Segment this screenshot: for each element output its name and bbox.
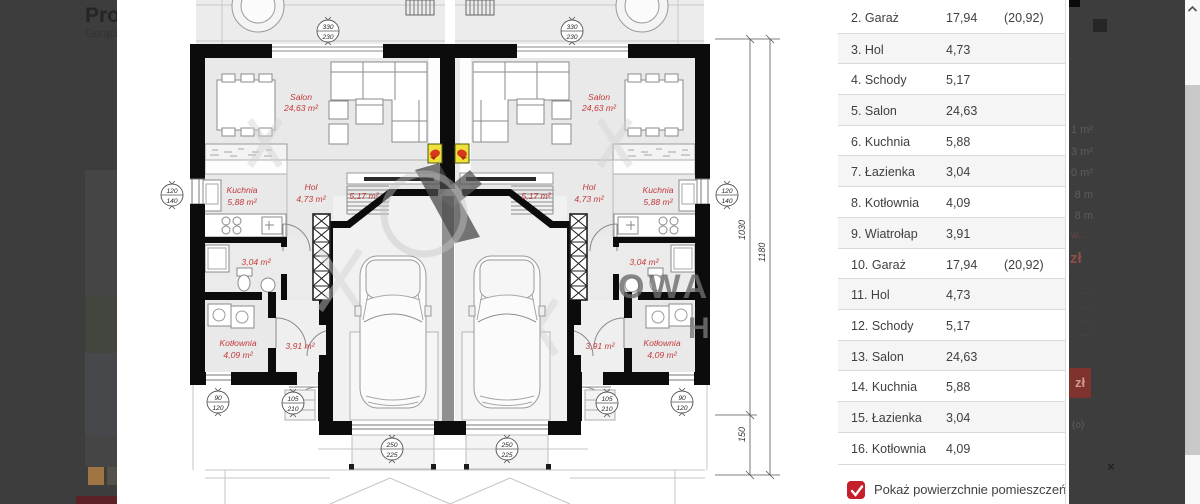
svg-text:3,04 m²: 3,04 m²	[241, 257, 271, 267]
svg-text:120: 120	[721, 188, 732, 195]
svg-text:105: 105	[601, 396, 612, 403]
svg-text:Hol: Hol	[583, 182, 597, 192]
svg-text:1180: 1180	[757, 243, 767, 262]
svg-text:150: 150	[737, 427, 747, 442]
svg-text:Hol: Hol	[305, 182, 319, 192]
svg-text:24,63 m²: 24,63 m²	[581, 103, 617, 113]
svg-text:120: 120	[166, 188, 177, 195]
svg-text:3,91 m²: 3,91 m²	[585, 341, 615, 351]
svg-text:Kuchnia: Kuchnia	[226, 185, 257, 195]
svg-text:330: 330	[566, 24, 577, 31]
svg-text:210: 210	[286, 406, 298, 413]
svg-text:90: 90	[678, 395, 686, 402]
svg-text:Salon: Salon	[588, 92, 610, 102]
svg-text:H: H	[688, 312, 710, 345]
svg-text:225: 225	[385, 452, 397, 459]
svg-text:250: 250	[385, 442, 397, 449]
svg-text:250: 250	[500, 442, 512, 449]
svg-text:4,09 m²: 4,09 m²	[647, 350, 677, 360]
svg-text:120: 120	[212, 405, 223, 412]
svg-text:90: 90	[214, 395, 222, 402]
svg-text:230: 230	[565, 34, 577, 41]
svg-text:Kotłownia: Kotłownia	[643, 338, 680, 348]
svg-text:120: 120	[676, 405, 687, 412]
svg-text:3,04 m²: 3,04 m²	[629, 257, 659, 267]
svg-text:230: 230	[321, 34, 333, 41]
svg-text:Kuchnia: Kuchnia	[642, 185, 673, 195]
svg-text:24,63 m²: 24,63 m²	[283, 103, 319, 113]
svg-text:4,73 m²: 4,73 m²	[574, 194, 604, 204]
svg-text:5,17 m²: 5,17 m²	[521, 191, 551, 201]
svg-text:4,09 m²: 4,09 m²	[223, 350, 253, 360]
svg-text:4,73 m²: 4,73 m²	[296, 194, 326, 204]
svg-text:210: 210	[600, 406, 612, 413]
svg-text:105: 105	[287, 396, 298, 403]
svg-text:140: 140	[721, 198, 732, 205]
svg-text:Salon: Salon	[290, 92, 312, 102]
svg-text:330: 330	[322, 24, 333, 31]
svg-text:3,91 m²: 3,91 m²	[285, 341, 315, 351]
svg-text:5,17 m²: 5,17 m²	[349, 191, 379, 201]
svg-text:225: 225	[500, 452, 512, 459]
svg-text:1030: 1030	[737, 220, 747, 240]
svg-text:140: 140	[166, 198, 177, 205]
svg-text:5,88 m²: 5,88 m²	[643, 197, 673, 207]
svg-text:5,88 m²: 5,88 m²	[227, 197, 257, 207]
svg-text:Kotłownia: Kotłownia	[219, 338, 256, 348]
svg-text:OWA: OWA	[618, 268, 711, 306]
